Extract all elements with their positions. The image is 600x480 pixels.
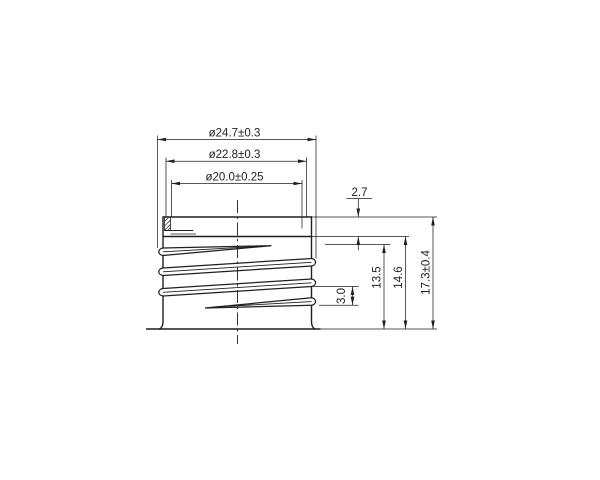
- thread-pitch-label: 3.0: [336, 288, 348, 304]
- section-hatch: [165, 217, 171, 231]
- thread-crest-4: [205, 298, 316, 308]
- hatch-lines: [165, 217, 171, 231]
- dim-top-to-thread: 2.7: [347, 187, 373, 251]
- overall-height-label: 17.3±0.4: [421, 250, 433, 295]
- thread-crest-1: [159, 246, 271, 256]
- dim-thread-od: ø24.7±0.3: [158, 127, 317, 258]
- bore-id-label: ø20.0±0.25: [205, 171, 263, 183]
- dim-bore-id: ø20.0±0.25: [172, 171, 303, 228]
- thread-end-height-label: 14.6: [393, 266, 405, 288]
- right-wall: [312, 217, 316, 329]
- thread-od-label: ø24.7±0.3: [209, 127, 261, 139]
- dim-height-14-6: 14.6: [312, 237, 410, 330]
- dim-thread-pitch: 3.0: [313, 287, 359, 306]
- technical-drawing-canvas: ø24.7±0.3 ø22.8±0.3 ø20.0±0.25 2.7 3.0 1…: [0, 0, 600, 480]
- thread-start-height-label: 13.5: [371, 266, 383, 288]
- root-od-label: ø22.8±0.3: [209, 149, 261, 161]
- extension-lines: [166, 158, 307, 218]
- drawing-sheet: ø24.7±0.3 ø22.8±0.3 ø20.0±0.25 2.7 3.0 1…: [0, 0, 600, 480]
- extension-lines: [172, 180, 303, 229]
- top-to-thread-label: 2.7: [352, 187, 368, 199]
